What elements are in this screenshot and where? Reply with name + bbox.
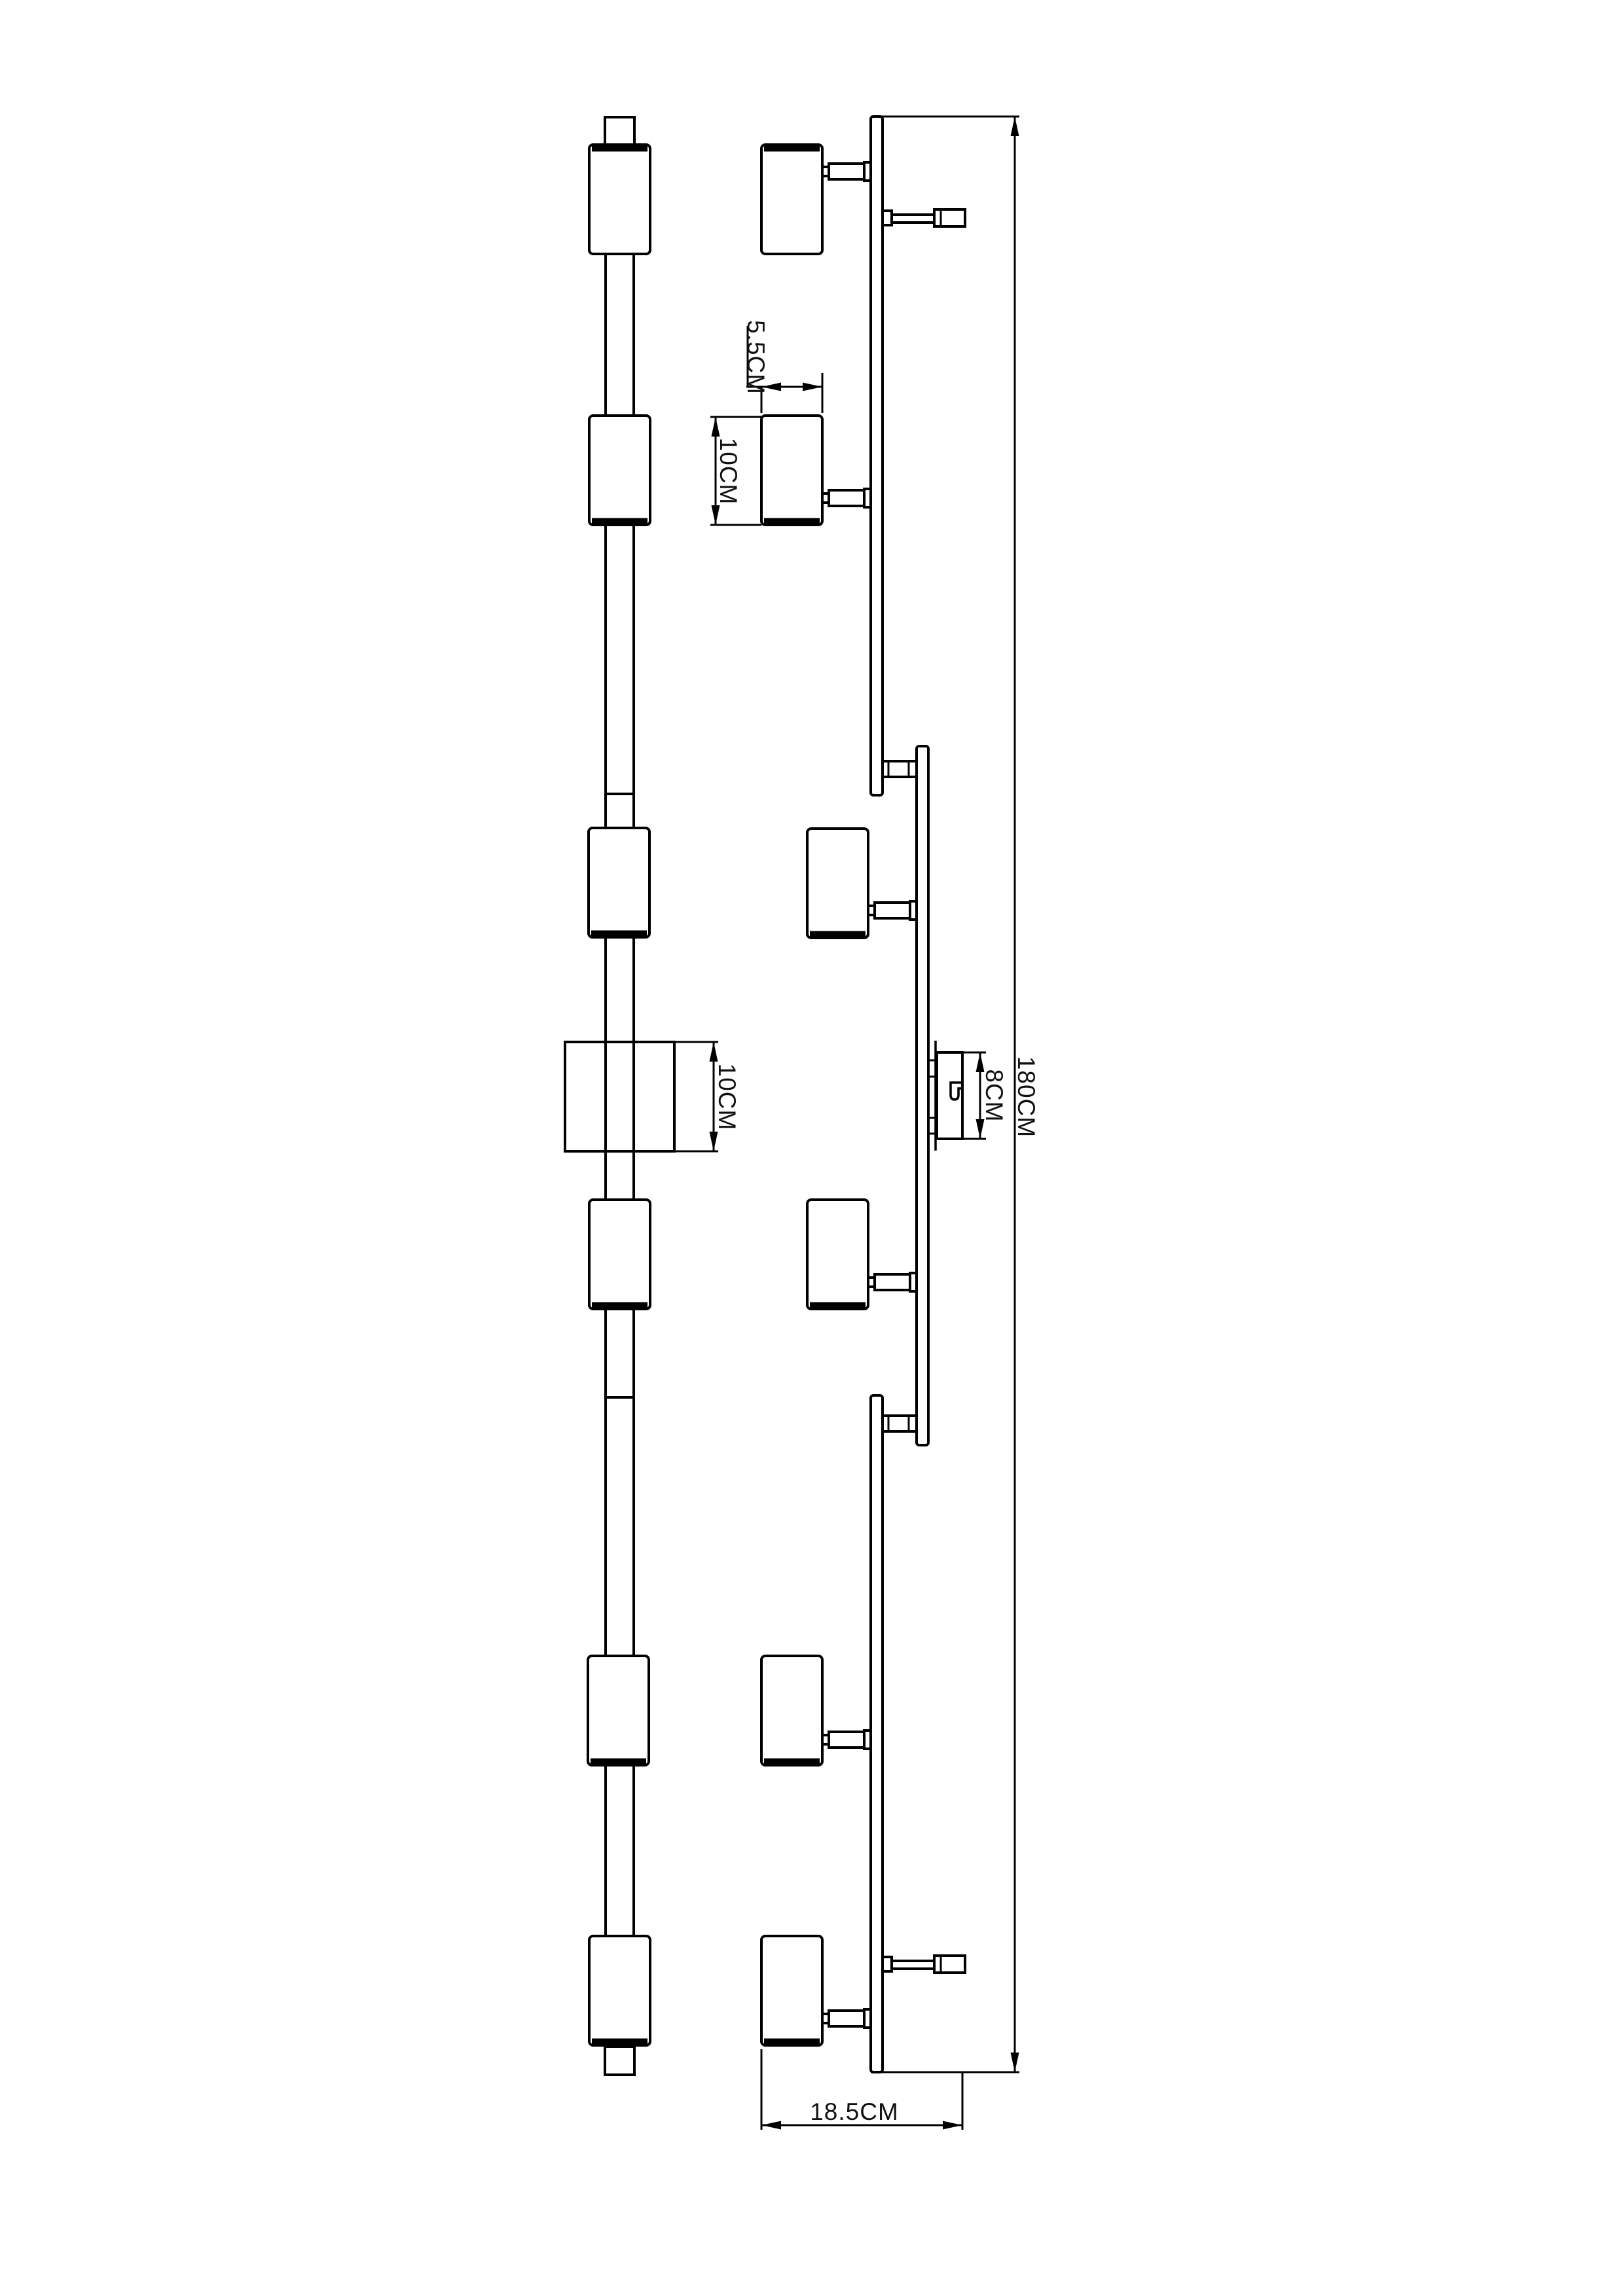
back-knob-bottom: [883, 1956, 965, 1973]
arrow-up: [710, 1042, 718, 1062]
side-spot-5: [588, 1656, 649, 1765]
front-view: [761, 117, 965, 2072]
dim-canopy-height: [674, 1042, 718, 1151]
side-spot-4: [589, 1200, 650, 1309]
side-top-cap: [605, 117, 634, 145]
side-rod: [606, 117, 634, 2075]
side-spot-1: [589, 145, 650, 254]
side-spot-6: [589, 1936, 650, 2045]
side-bottom-cap: [605, 2047, 634, 2075]
front-spot-6: [761, 1936, 871, 2045]
arrow-down: [1011, 2053, 1019, 2072]
dim-label-bracket-height: 8CM: [980, 1069, 1008, 1122]
dim-label-total-depth: 18.5CM: [810, 2098, 899, 2126]
arrow-down: [710, 1132, 718, 1151]
mount-bracket: [928, 1041, 963, 1151]
side-canopy-block: [565, 1042, 674, 1151]
front-rail-bottom: [871, 1395, 883, 2072]
rail-connector-upper: [883, 761, 917, 777]
front-spot-2: [761, 416, 871, 525]
dim-label-head-height: 10CM: [714, 438, 742, 505]
side-view: [565, 117, 674, 2075]
front-spot-4: [807, 1200, 917, 1309]
arrow-left: [761, 2121, 781, 2130]
dim-label-head-width: 5.5CM: [742, 320, 769, 395]
front-rail-middle: [917, 746, 928, 1445]
arrow-right: [943, 2121, 962, 2130]
side-spot-2: [589, 416, 650, 525]
dim-label-total-length: 180CM: [1012, 1056, 1040, 1138]
front-rail-top: [871, 117, 883, 795]
arrow-up: [712, 417, 720, 437]
arrow-up: [1011, 117, 1019, 136]
rail-connector-lower: [883, 1416, 917, 1431]
side-spot-3: [589, 828, 649, 937]
front-spot-5: [761, 1656, 871, 1765]
back-knob-top: [883, 209, 965, 226]
front-spot-1: [761, 145, 871, 254]
arrow-right: [803, 383, 822, 391]
dim-label-canopy-height: 10CM: [713, 1064, 740, 1131]
fixture-dimension-drawing: [0, 0, 1623, 2296]
front-spot-3: [807, 829, 917, 938]
drawing-sheet: 5.5CM 10CM 10CM 8CM 180CM 18.5CM: [0, 0, 1623, 2296]
arrow-down: [712, 505, 720, 525]
